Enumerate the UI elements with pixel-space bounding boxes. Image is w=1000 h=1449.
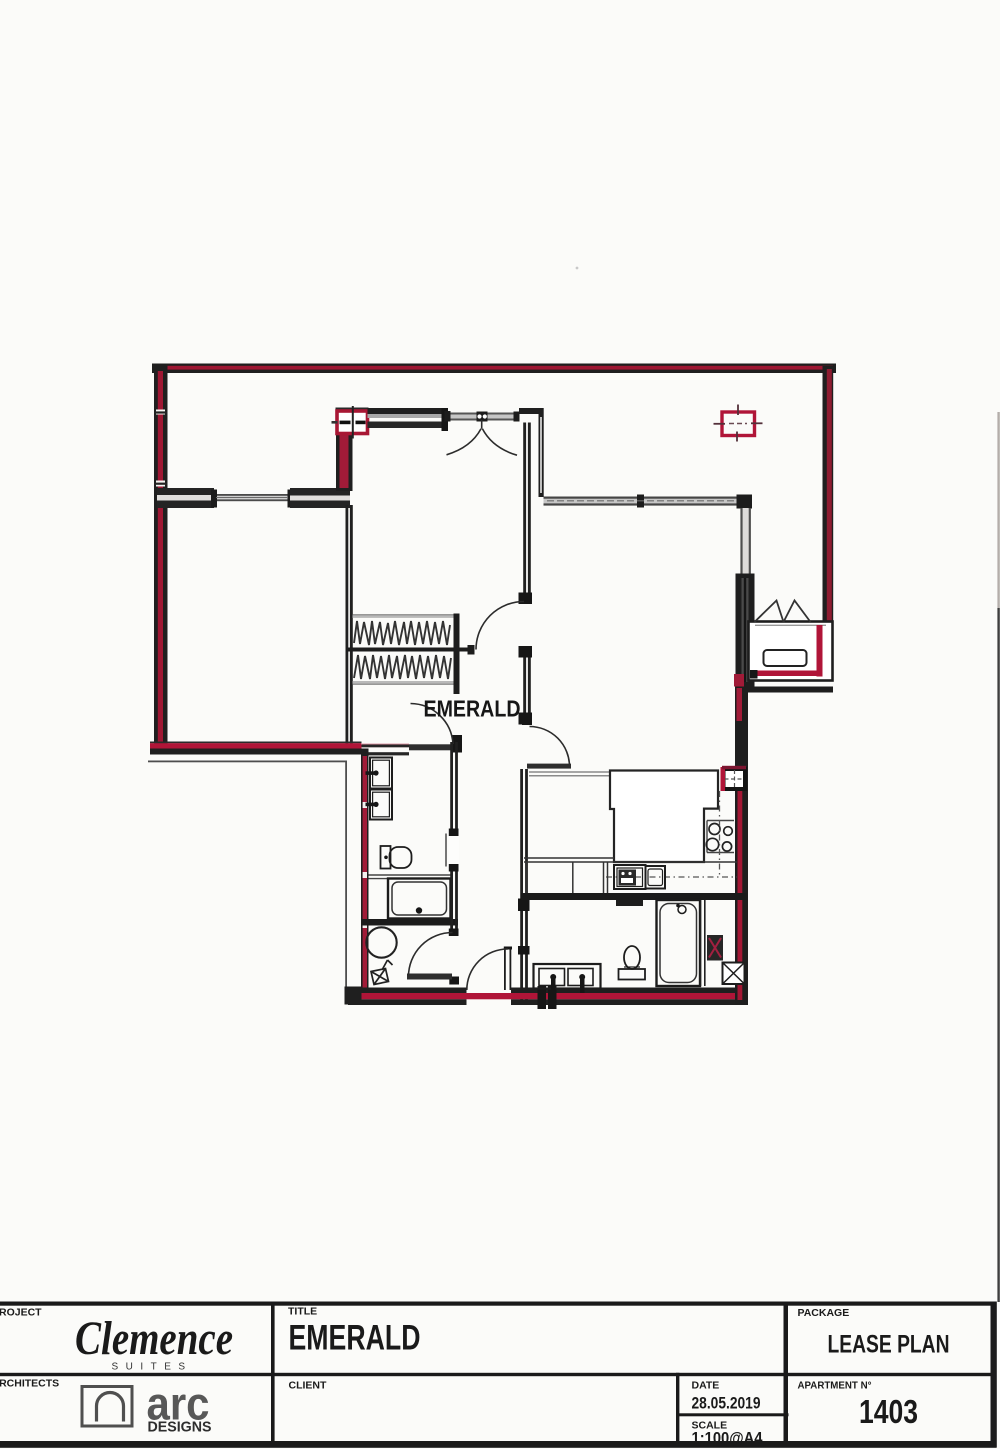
svg-text:1403: 1403 (859, 1393, 918, 1430)
svg-text:1:100@A4: 1:100@A4 (692, 1430, 764, 1448)
svg-text:DATE: DATE (692, 1380, 720, 1392)
svg-text:EMERALD: EMERALD (289, 1319, 421, 1358)
svg-text:TITLE: TITLE (288, 1306, 317, 1318)
svg-text:PACKAGE: PACKAGE (798, 1307, 850, 1319)
svg-text:SUITES: SUITES (111, 1362, 192, 1373)
svg-text:Clemence: Clemence (75, 1312, 233, 1365)
svg-text:LEASE PLAN: LEASE PLAN (828, 1331, 950, 1359)
svg-text:CLIENT: CLIENT (289, 1380, 328, 1392)
svg-text:APARTMENT N°: APARTMENT N° (798, 1380, 872, 1392)
svg-text:ARCHITECTS: ARCHITECTS (0, 1378, 59, 1390)
svg-text:DESIGNS: DESIGNS (148, 1419, 212, 1436)
svg-text:PROJECT: PROJECT (0, 1307, 42, 1319)
svg-text:EMERALD: EMERALD (424, 696, 521, 722)
svg-text:28.05.2019: 28.05.2019 (692, 1395, 761, 1413)
